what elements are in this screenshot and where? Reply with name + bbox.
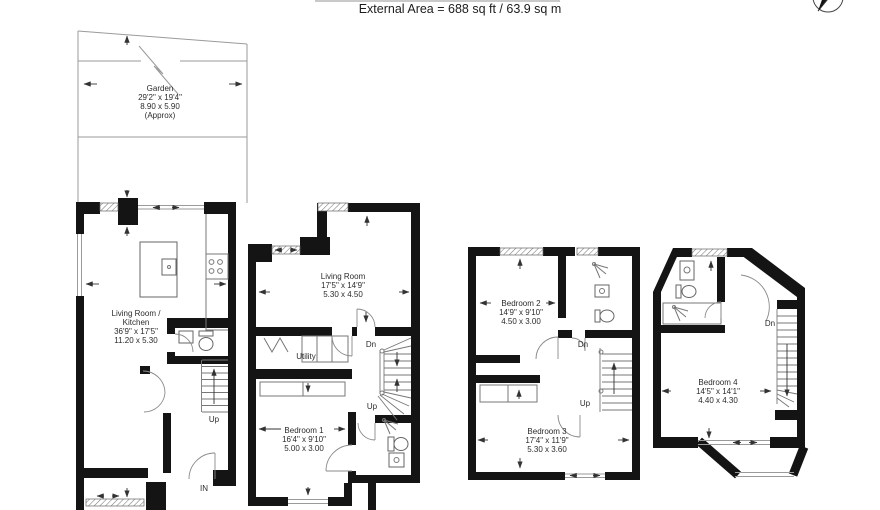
sink [179, 331, 193, 343]
floor-plan-second: Bedroom 2 14'9" x 9'10" 4.50 x 3.00 Bedr… [468, 247, 640, 480]
bathroom-fixtures [383, 419, 409, 468]
bedroom3-label: Bedroom 3 [527, 427, 567, 436]
bedroom2-metric: 4.50 x 3.00 [501, 317, 541, 326]
wardrobe [480, 385, 537, 402]
bathroom-fixtures [593, 263, 615, 323]
dn-label: Dn [765, 319, 775, 328]
sink [680, 261, 694, 280]
toilet-cistern [676, 285, 681, 298]
entrance-in-label: IN [200, 484, 208, 493]
living-room-metric: 5.30 x 4.50 [323, 290, 363, 299]
doors [536, 337, 585, 437]
doors [143, 334, 215, 479]
bedroom1-label: Bedroom 1 [284, 426, 324, 435]
utility-fixtures [260, 336, 348, 396]
compass-icon [813, 0, 843, 12]
up-label: Up [580, 399, 591, 408]
living-room-imperial: 17'5" x 14'9" [321, 281, 365, 290]
dn-label: Dn [578, 340, 588, 349]
bedroom2-label: Bedroom 2 [501, 299, 541, 308]
bedroom1-metric: 5.00 x 3.00 [284, 444, 324, 453]
floorplan-page: External Area = 688 sq ft / 63.9 sq m Ga… [0, 0, 880, 510]
staircase [599, 348, 632, 412]
up-label: Up [367, 402, 378, 411]
garden-approx: (Approx) [145, 111, 176, 120]
floor-plan-third: Bedroom 4 14'5" x 14'1" 4.40 x 4.30 Dn [653, 248, 805, 477]
island-sink [162, 259, 176, 275]
toilet [682, 286, 696, 298]
hob [206, 254, 228, 279]
bedroom4-imperial: 14'5" x 14'1" [696, 387, 740, 396]
bay-wall-right [793, 447, 804, 475]
bifold-door [264, 338, 288, 352]
staircase-dn [777, 309, 797, 407]
staircase-up [202, 360, 229, 412]
utility-label: Utility [296, 352, 316, 361]
bedroom1-imperial: 16'4" x 9'10" [282, 435, 326, 444]
toilet-cistern [199, 331, 213, 336]
toilet [199, 338, 213, 351]
doors [705, 275, 769, 321]
bay-wall-left [699, 441, 738, 475]
bedroom3-imperial: 17'4" x 11'9" [525, 436, 568, 445]
garden-dims-metric: 8.90 x 5.90 [140, 102, 180, 111]
bedroom4-label: Bedroom 4 [698, 378, 738, 387]
floorplan-canvas: External Area = 688 sq ft / 63.9 sq m Ga… [0, 0, 880, 510]
dimension-arrows [259, 216, 409, 495]
toilet [394, 438, 408, 451]
garden-dims-imperial: 29'2" x 19'4" [138, 93, 182, 102]
sink [389, 453, 404, 467]
room-label-living-kitchen-1: Living Room / [112, 309, 162, 318]
room-label-living-kitchen-2: Kitchen [123, 318, 150, 327]
room-dims-metric: 11.20 x 5.30 [114, 336, 158, 345]
up-label: Up [209, 415, 220, 424]
bathroom-fixtures [179, 331, 213, 351]
header: External Area = 688 sq ft / 63.9 sq m [315, 0, 561, 16]
living-room-label: Living Room [321, 272, 366, 281]
walls [653, 248, 805, 448]
bedroom2-imperial: 14'9" x 9'10" [499, 308, 543, 317]
bedroom3-metric: 5.30 x 3.60 [527, 445, 567, 454]
toilet-cistern [388, 437, 394, 451]
floor-plan-ground: Living Room / Kitchen 36'9" x 17'5" 11.2… [76, 190, 236, 510]
garden-label: Garden [147, 84, 174, 93]
doors [326, 309, 375, 471]
bathroom-fixtures [663, 261, 721, 324]
garden-area: Garden 29'2" x 19'4" 8.90 x 5.90 (Approx… [78, 31, 247, 203]
toilet [600, 310, 614, 322]
bedroom4-metric: 4.40 x 4.30 [698, 396, 738, 405]
room-dims-imperial: 36'9" x 17'5" [114, 327, 158, 336]
dn-label: Dn [366, 340, 376, 349]
staircase-winder [378, 338, 411, 420]
sink [595, 285, 609, 297]
toilet-cistern [595, 310, 600, 322]
external-area-text: External Area = 688 sq ft / 63.9 sq m [359, 2, 562, 16]
floor-plan-first: Living Room 17'5" x 14'9" 5.30 x 4.50 Ut… [248, 203, 420, 510]
shower-tray [663, 303, 721, 324]
